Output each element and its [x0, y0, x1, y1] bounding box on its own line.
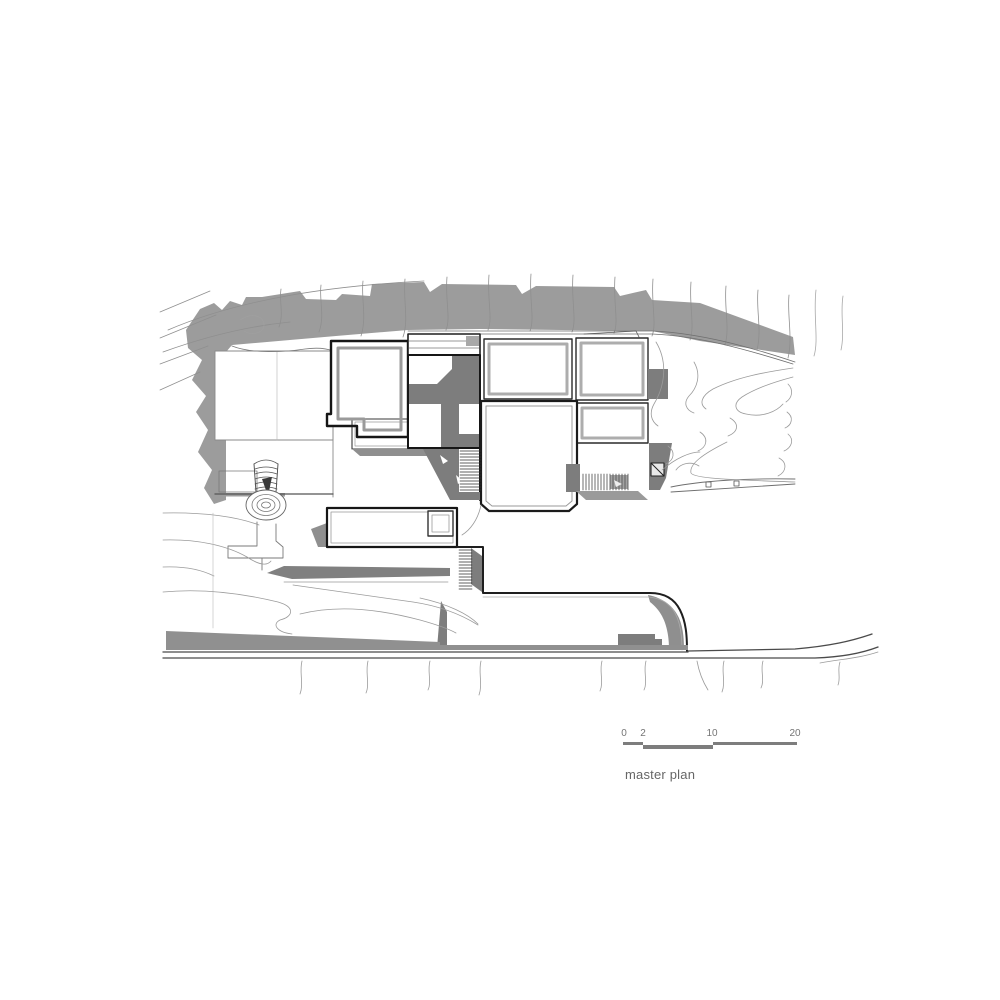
scale-bar-segment-3: [713, 742, 797, 746]
scale-label-20: 20: [785, 728, 805, 739]
page: 0 2 10 20 master plan: [0, 0, 1000, 1000]
drawing-caption: master plan: [625, 767, 695, 782]
site-plan-drawing: [0, 0, 1000, 1000]
buildings: [311, 331, 672, 547]
east-ramp: [662, 452, 795, 492]
driveway-plateau: [457, 547, 687, 651]
scale-label-2: 2: [636, 728, 650, 739]
scale-label-10: 10: [702, 728, 722, 739]
scale-bar-segment-2: [643, 745, 713, 749]
contour-lines-lower: [163, 505, 878, 695]
scale-bar-segment-1: [623, 742, 643, 746]
road: [163, 631, 878, 658]
scale-label-0: 0: [617, 728, 631, 739]
wall-shadow-band: [267, 566, 450, 648]
contour-lines-right: [651, 342, 795, 482]
